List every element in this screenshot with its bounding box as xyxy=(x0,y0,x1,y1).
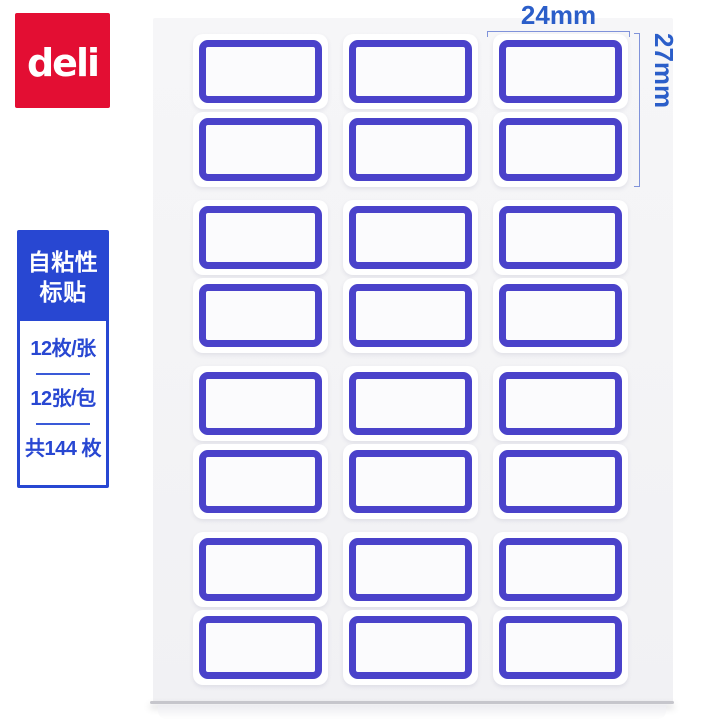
label-sticker xyxy=(343,278,478,353)
label-sticker xyxy=(343,366,478,441)
label-blank-frame xyxy=(199,40,322,103)
info-title-line-2: 标贴 xyxy=(20,277,106,307)
label-blank-frame xyxy=(349,284,472,347)
label-blank-frame xyxy=(499,450,622,513)
label-sticker xyxy=(193,200,328,275)
label-sheet xyxy=(153,18,673,703)
spec-total-labels: 共144 枚 xyxy=(25,434,101,464)
label-blank-frame xyxy=(199,450,322,513)
label-blank-frame xyxy=(199,372,322,435)
label-blank-frame xyxy=(349,538,472,601)
label-blank-frame xyxy=(349,40,472,103)
height-dimension-bracket xyxy=(634,33,640,187)
label-sticker xyxy=(493,366,628,441)
spec-divider xyxy=(36,423,90,425)
label-sticker xyxy=(193,610,328,685)
label-sticker xyxy=(193,532,328,607)
info-title-line-1: 自粘性 xyxy=(20,247,106,277)
label-blank-frame xyxy=(349,206,472,269)
label-sticker xyxy=(343,532,478,607)
label-sticker xyxy=(493,278,628,353)
label-sticker xyxy=(193,366,328,441)
label-sticker xyxy=(343,610,478,685)
sheet-bottom-edge xyxy=(150,701,674,704)
label-sticker xyxy=(193,444,328,519)
label-sticker xyxy=(193,278,328,353)
label-sticker xyxy=(343,34,478,109)
label-sticker xyxy=(493,444,628,519)
width-dimension-annotation: 24mm xyxy=(487,0,630,37)
label-blank-frame xyxy=(199,118,322,181)
label-blank-frame xyxy=(199,616,322,679)
label-blank-frame xyxy=(199,206,322,269)
label-sticker xyxy=(493,112,628,187)
width-dimension-bracket xyxy=(487,31,630,37)
sheet-stack-below xyxy=(158,705,666,719)
label-sticker xyxy=(343,200,478,275)
label-blank-frame xyxy=(349,118,472,181)
label-sticker xyxy=(493,200,628,275)
label-blank-frame xyxy=(499,284,622,347)
info-card-title: 自粘性 标贴 xyxy=(20,233,106,321)
info-card-body: 12枚/张 12张/包 共144 枚 xyxy=(20,321,106,464)
product-info-card: 自粘性 标贴 12枚/张 12张/包 共144 枚 xyxy=(17,230,109,488)
spec-labels-per-sheet: 12枚/张 xyxy=(30,334,95,364)
label-blank-frame xyxy=(199,284,322,347)
spec-divider xyxy=(36,373,90,375)
label-blank-frame xyxy=(499,40,622,103)
height-dimension-label: 27mm xyxy=(648,33,679,187)
label-blank-frame xyxy=(349,372,472,435)
label-sticker xyxy=(493,610,628,685)
label-blank-frame xyxy=(499,616,622,679)
label-blank-frame xyxy=(349,616,472,679)
label-sticker xyxy=(193,112,328,187)
label-blank-frame xyxy=(499,538,622,601)
label-sticker xyxy=(493,532,628,607)
width-dimension-label: 24mm xyxy=(521,0,596,30)
label-blank-frame xyxy=(499,372,622,435)
label-blank-frame xyxy=(349,450,472,513)
spec-sheets-per-pack: 12张/包 xyxy=(30,384,95,414)
label-blank-frame xyxy=(499,206,622,269)
label-blank-frame xyxy=(199,538,322,601)
label-sticker xyxy=(193,34,328,109)
deli-logo-text: deli xyxy=(27,41,98,85)
label-sticker xyxy=(493,34,628,109)
label-blank-frame xyxy=(499,118,622,181)
deli-logo: deli xyxy=(15,13,110,108)
label-sticker xyxy=(343,444,478,519)
label-sticker xyxy=(343,112,478,187)
